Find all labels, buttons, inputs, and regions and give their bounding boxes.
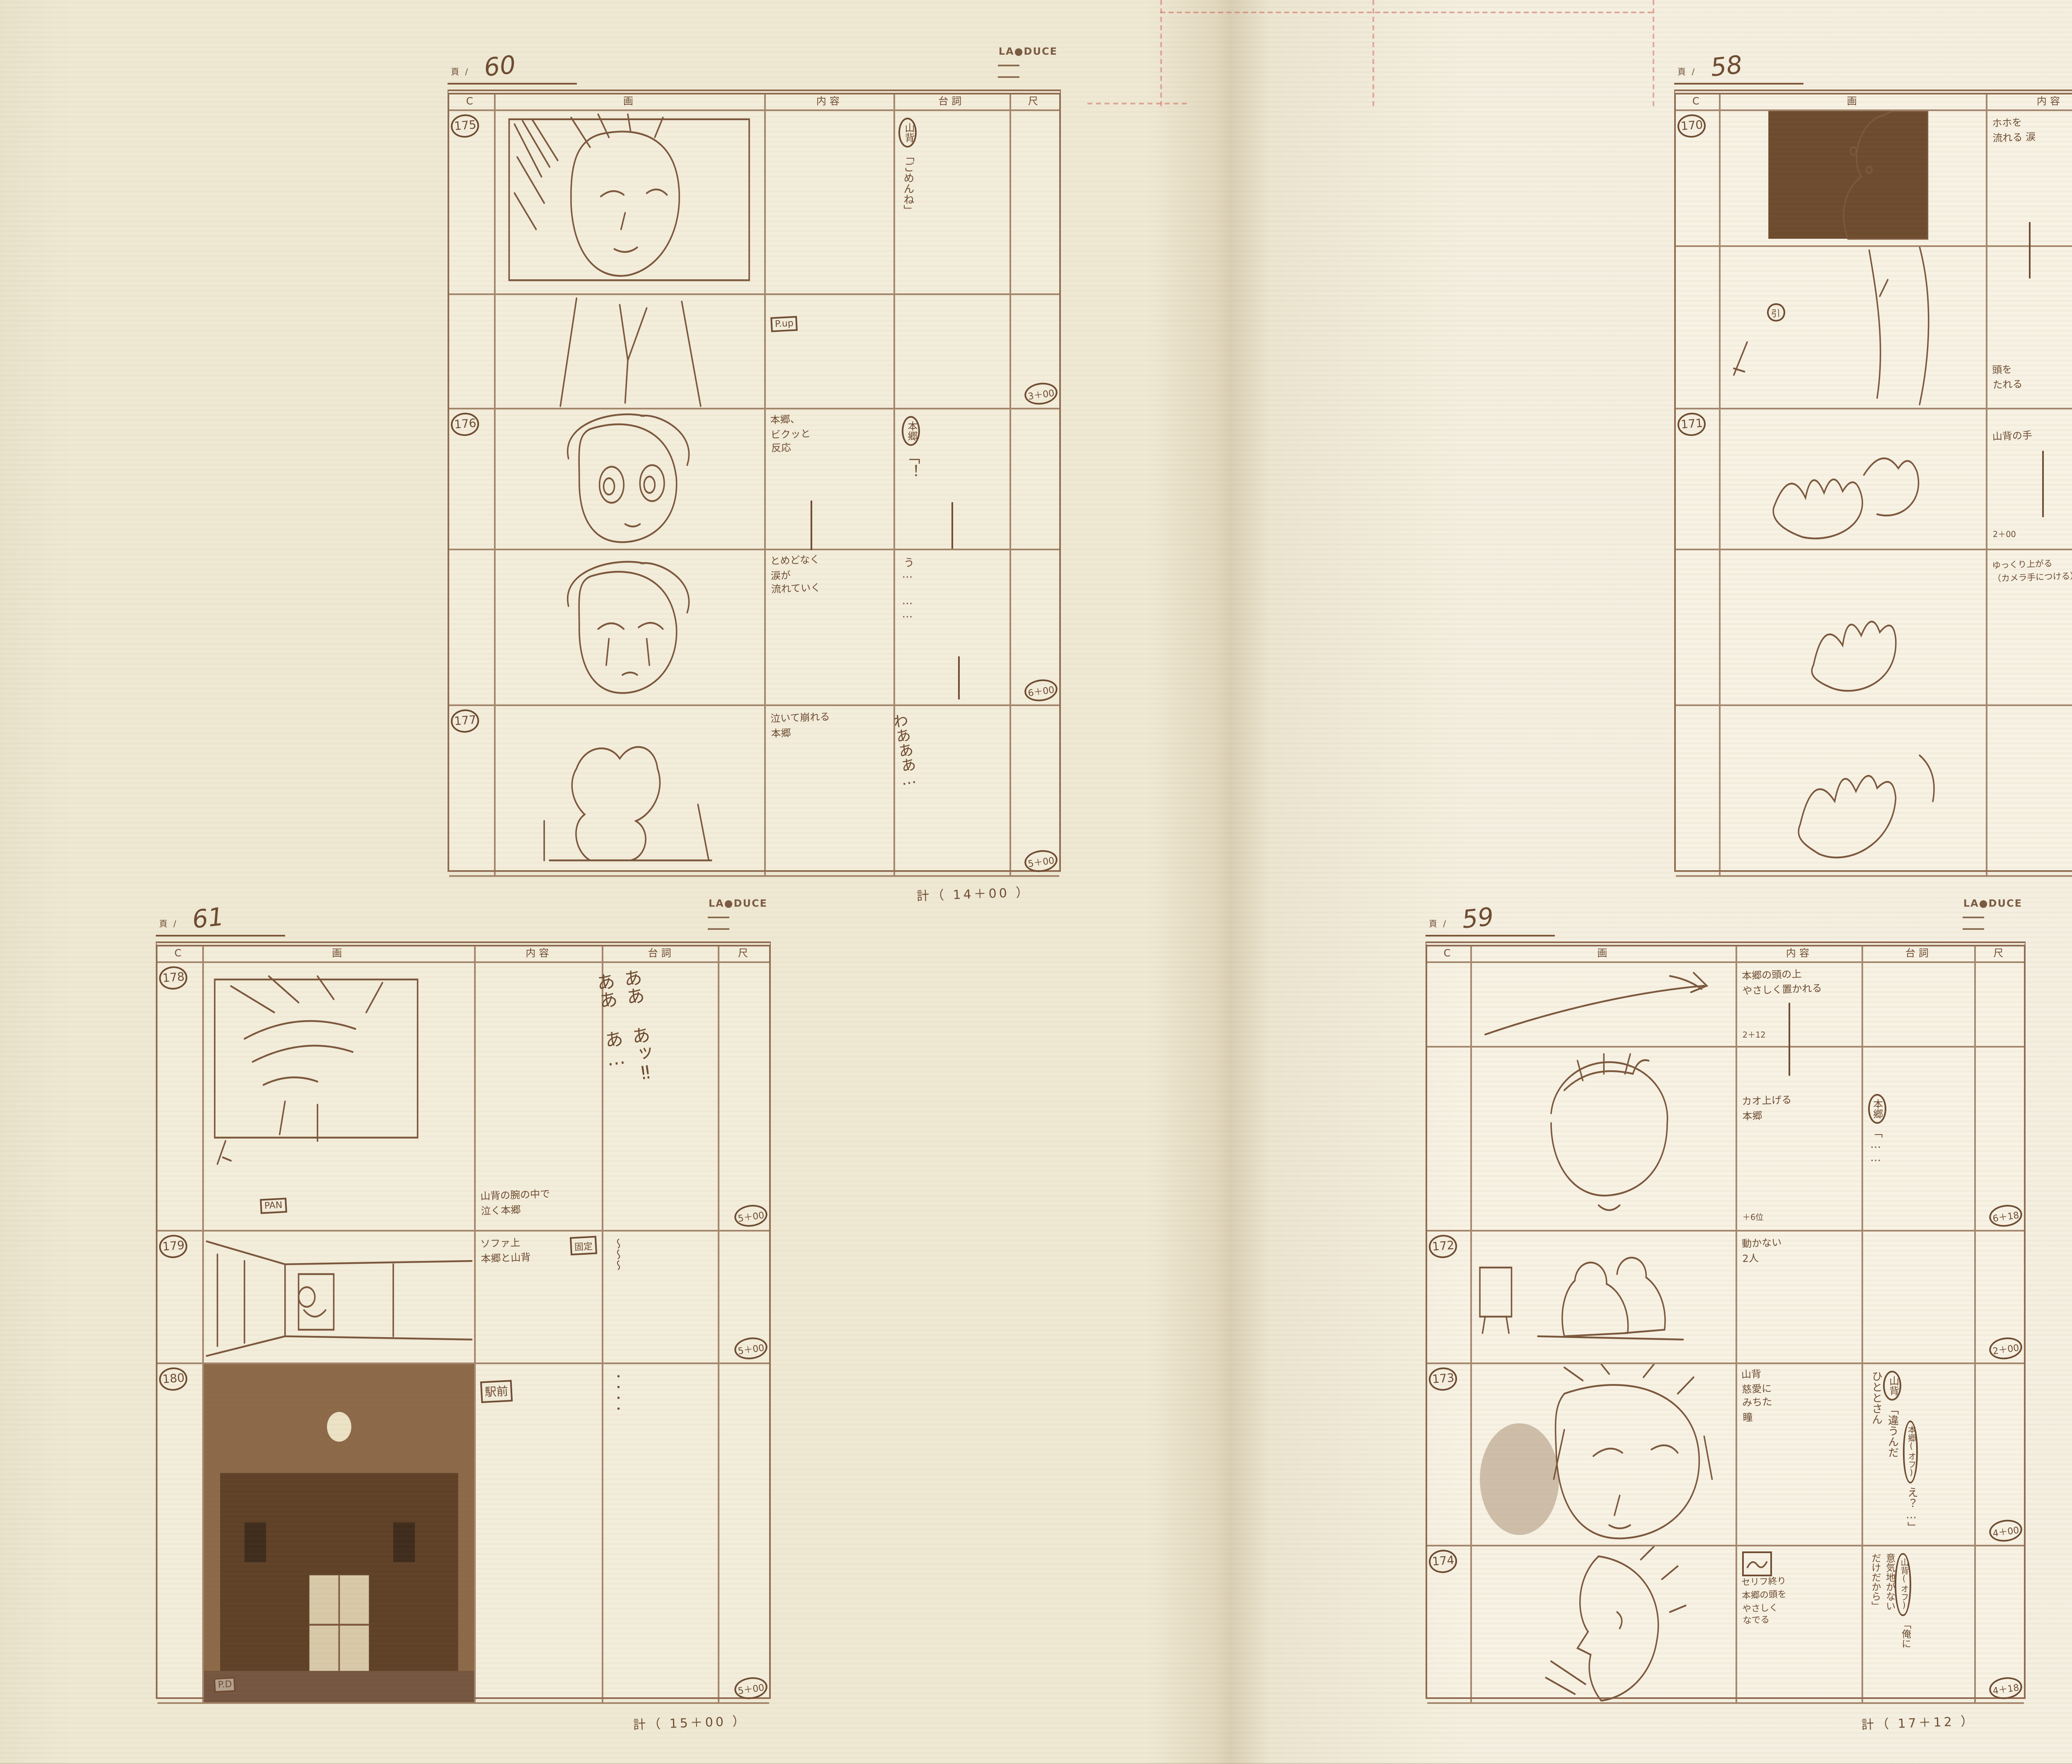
timing-value: 4＋00 <box>1988 1518 2024 1544</box>
dialogue-text: 本郷「…… <box>1866 1094 1886 1227</box>
timing-value: 4＋18 <box>1988 1675 2024 1701</box>
speaker-name: 本郷(オフ) <box>1902 1420 1918 1483</box>
cut-number-cell <box>1676 706 1721 877</box>
cut-number-cell: 177 <box>449 706 495 877</box>
cut-number-cell: 178 <box>157 963 203 1232</box>
action-cut-170b: 頭を たれる <box>1988 247 2072 409</box>
picture-cut-175 <box>495 111 766 295</box>
sketch-arm-reaching <box>1472 963 1736 1046</box>
sheet-page-60: 頁 / 60 LA●DUCE C 画 内容 台詞 尺 175 <box>448 90 1061 872</box>
sketch-shirt <box>495 295 765 408</box>
dialogue-cell <box>894 295 1010 409</box>
sketch-crying-eyes-closeup <box>203 963 474 1230</box>
cut-number-cell: 180 <box>157 1364 203 1704</box>
sketch-boy-face-closeup <box>1472 1364 1736 1545</box>
sketch-girl-crying <box>495 550 765 704</box>
storyboard-grid-61: C 画 内容 台詞 尺 178 PAN 山背の腕の中で 泣く本郷 ああ あッ‼ … <box>156 941 771 1699</box>
continuation-line <box>951 502 953 549</box>
picture-cut-173 <box>1472 1364 1738 1546</box>
page-label: 頁 / <box>159 918 178 930</box>
dialogue-text: う… …… <box>898 557 914 701</box>
dialogue-text: 山背「ごめんね」 <box>898 118 917 290</box>
action-text: とめどなく 涙が 流れていく <box>771 554 822 599</box>
sketch-hand-closeup <box>1721 706 1986 875</box>
action-cut-178: 山背の腕の中で 泣く本郷 <box>476 963 604 1232</box>
speaker-name: 山背 <box>899 118 917 148</box>
cut-number-cell: 176 <box>449 409 495 550</box>
col-header-timing: 尺 <box>1976 946 2024 963</box>
col-header-picture: 画 <box>495 94 766 111</box>
dialogue-trailing: 〜〜〜 <box>607 1238 623 1359</box>
action-cell <box>766 111 894 295</box>
dialogue-cut-179: 〜〜〜 <box>604 1232 720 1364</box>
reg-guide-line <box>1372 0 1374 106</box>
action-text: 山背の腕の中で 泣く本郷 <box>480 1188 550 1220</box>
timing-cut-171-total: 6＋18 <box>1976 1048 2024 1232</box>
dialogue-text-2: 本郷(オフ)え？…」 <box>1902 1420 1918 1541</box>
dialogue-cut-180: ・・・・ <box>604 1364 720 1704</box>
cut-number-cell: 175 <box>449 111 495 295</box>
sheet-total-60: 計（ 14＋00 ） <box>917 883 1031 905</box>
col-header-c: C <box>157 946 203 963</box>
reg-guide-line <box>1160 12 1653 13</box>
picture-cut-170b: 引 <box>1721 247 1988 409</box>
action-text: ソファ上 本郷と山背 <box>480 1238 530 1268</box>
timing-cut-174: 4＋18 <box>1976 1546 2024 1704</box>
sketch-clasped-hands <box>1721 409 1986 549</box>
timing-cell <box>1010 111 1059 295</box>
timing-value: 2＋00 <box>1988 1336 2024 1362</box>
action-cut-177: 泣いて崩れる 本郷 <box>766 706 894 877</box>
continuation-line <box>2029 222 2031 278</box>
picture-cut-170 <box>1721 111 1988 247</box>
picture-cut-177 <box>495 706 766 877</box>
cut-number: 175 <box>450 114 480 139</box>
page-number: 59 <box>1460 902 1495 935</box>
cut-number-cell: 173 <box>1427 1364 1472 1546</box>
picture-hand-on-head <box>1472 1048 1738 1232</box>
sheet-61-header: 頁 / 61 LA●DUCE <box>156 897 771 936</box>
cut-number: 177 <box>450 709 480 734</box>
timing-value: 6＋18 <box>1988 1203 2024 1229</box>
sheet-total-61: 計（ 15＋00 ） <box>633 1712 748 1734</box>
sheet-59-header: 頁 / 59 LA●DUCE <box>1426 897 2026 936</box>
sketch-boy-face <box>495 111 765 293</box>
timing-value: 5＋00 <box>733 1675 769 1701</box>
action-text: 泣いて崩れる 本郷 <box>771 712 831 743</box>
picture-cut-179 <box>203 1232 476 1364</box>
action-text: 頭を たれる <box>1992 363 2023 393</box>
page-number: 60 <box>482 50 517 83</box>
reg-guide-line <box>1160 0 1162 106</box>
action-text: 動かない 2人 <box>1742 1238 1783 1268</box>
page-number-underline <box>448 83 577 85</box>
continuation-line <box>811 501 813 550</box>
camera-note: ゆっくり上がる （カメラ手につける） <box>1992 559 2072 587</box>
timing-cut-177: 5＋00 <box>1010 706 1059 877</box>
cut-number-cell <box>1676 550 1721 706</box>
action-cut-176: 本郷、 ビクッと 反応 <box>766 409 894 550</box>
laduce-logo: LA●DUCE <box>709 898 767 933</box>
logo-subtext-lines <box>1963 910 2022 933</box>
cut-number-cell: 179 <box>157 1232 203 1364</box>
page-number: 61 <box>191 902 225 935</box>
action-cut-179: ソファ上 本郷と山背 固定 <box>476 1232 604 1364</box>
page-label: 頁 / <box>451 66 470 78</box>
dialogue-cut-177: わあああ… <box>894 706 1010 877</box>
action-cut-176b: とめどなく 涙が 流れていく <box>766 550 894 706</box>
cut-number: 176 <box>450 412 480 437</box>
picture-cut-175b <box>495 295 766 409</box>
sheet-page-58: 頁 / 58 LA●DUCE C 画 内容 台詞 尺 170 ホホを 流れる 涙… <box>1674 90 2072 872</box>
picture-cut-171 <box>1721 409 1988 550</box>
col-header-timing: 尺 <box>1010 94 1059 111</box>
storyboard-grid-60: C 画 内容 台詞 尺 175 山背「ごめんね」 <box>448 90 1061 872</box>
laduce-logo: LA●DUCE <box>1963 898 2022 933</box>
cut-number: 174 <box>1428 1549 1458 1574</box>
col-header-action: 内容 <box>1738 946 1863 963</box>
timing-value: 6＋00 <box>1023 678 1059 704</box>
reg-guide-line <box>1653 0 1654 106</box>
picture-cut-176 <box>495 409 766 550</box>
sketch-girl-face <box>495 409 765 549</box>
action-cut-175-note: P.up <box>766 295 894 409</box>
cut-number-cell <box>449 550 495 706</box>
cut-number-cell: 172 <box>1427 1232 1472 1364</box>
picture-cut-172 <box>1472 1232 1738 1364</box>
col-header-dialogue: 台詞 <box>1863 946 1976 963</box>
cut-number: 171 <box>1677 412 1707 437</box>
sketch-station-night <box>203 1364 474 1702</box>
cut-number: 180 <box>158 1367 189 1392</box>
timing-cut-178: 5＋00 <box>720 963 769 1232</box>
cut-number: 172 <box>1428 1234 1458 1259</box>
cut-number-cell: 170 <box>1676 111 1721 247</box>
cut-number-cell <box>1427 963 1472 1048</box>
timing-cut-180: 5＋00 <box>720 1364 769 1704</box>
logo-subtext-lines <box>999 58 1058 81</box>
sketch-hand-rising <box>1721 550 1986 704</box>
fixed-camera-note: 固定 <box>570 1236 598 1255</box>
speaker-name: 山背 <box>1883 1371 1902 1401</box>
dialogue-text: 山背「違うんだ ひととさん <box>1866 1371 1902 1541</box>
timing-value: 3＋00 <box>1023 381 1059 407</box>
picture-cut-180-station: P.D <box>203 1364 476 1704</box>
continuation-line <box>2043 451 2044 517</box>
picture-cut-174 <box>1472 1546 1738 1704</box>
speaker-name: 本郷 <box>1867 1094 1886 1124</box>
page-label: 頁 / <box>1429 918 1447 930</box>
station-front-note: 駅前 <box>480 1379 513 1402</box>
dialogue-hongo-silent: 本郷「…… <box>1863 1048 1976 1232</box>
timing-cut-173: 4＋00 <box>1976 1364 2024 1546</box>
page-number-underline <box>1674 83 1803 85</box>
logo-subtext-lines <box>709 910 767 933</box>
cut-number-cell: 174 <box>1427 1546 1472 1704</box>
storyboard-grid-58: C 画 内容 台詞 尺 170 ホホを 流れる 涙 本郷「教えて！ <box>1674 90 2072 872</box>
action-text: ホホを 流れる 涙 <box>1992 117 2036 148</box>
action-cell <box>1988 706 2072 877</box>
pull-back-note: 引 <box>1767 303 1785 322</box>
sketch-room-interior <box>203 1232 474 1362</box>
action-cut-171b: ゆっくり上がる （カメラ手につける） <box>1988 550 2072 706</box>
col-header-action: 内容 <box>766 94 894 111</box>
action-cut-172: 動かない 2人 <box>1738 1232 1863 1364</box>
timing-value: 5＋00 <box>733 1203 769 1229</box>
action-cut-173: 山背 慈愛に みちた 瞳 <box>1738 1364 1863 1546</box>
dialogue-cut-174: 山背(オフ)「俺に 意気地がない だけだから」 <box>1863 1546 1976 1704</box>
picture-cut-176b <box>495 550 766 706</box>
timing-cell <box>1976 963 2024 1048</box>
picture-cut-171b <box>1721 550 1988 706</box>
col-header-action: 内容 <box>1988 94 2072 111</box>
sketch-profile-and-hand <box>1472 1546 1736 1702</box>
col-header-picture: 画 <box>203 946 476 963</box>
dialogue-trailing-dots: ・・・・ <box>607 1371 623 1699</box>
sketch-two-people-room <box>1472 1232 1736 1362</box>
col-header-timing: 尺 <box>720 946 769 963</box>
col-header-c: C <box>1676 94 1721 111</box>
col-header-action: 内容 <box>476 946 604 963</box>
sheet-58-header: 頁 / 58 LA●DUCE <box>1674 45 2072 85</box>
col-header-picture: 画 <box>1472 946 1738 963</box>
pan-up-note: P.up <box>771 315 799 331</box>
cut-number: 179 <box>158 1234 189 1259</box>
action-face-up: カオ上げる 本郷＋6位 <box>1738 1048 1863 1232</box>
sheet-total-59: 計（ 17＋12 ） <box>1861 1712 1976 1734</box>
timing-cut-179: 5＋00 <box>720 1232 769 1364</box>
action-text: 本郷、 ビクッと 反応 <box>771 414 812 458</box>
sheet-60-header: 頁 / 60 LA●DUCE <box>448 45 1061 85</box>
sketch-dark-profile <box>1721 111 1986 245</box>
action-cut-171: 山背の手2＋00 <box>1988 409 2072 550</box>
timing-value: 5＋00 <box>1023 848 1059 874</box>
timing-cell <box>1010 409 1059 550</box>
dialogue-cut-173: 山背「違うんだ ひととさん本郷(オフ)え？…」 <box>1863 1364 1976 1546</box>
picture-cut-171-cont <box>1472 963 1738 1048</box>
cut-number-cell <box>449 295 495 409</box>
dialogue-cut-175: 山背「ごめんね」 <box>894 111 1010 295</box>
action-text: 本郷の頭の上 やさしく置かれる <box>1742 969 1823 1000</box>
dialogue-text: 山背(オフ)「俺に 意気地がない だけだから」 <box>1866 1553 1911 1699</box>
col-header-dialogue: 台詞 <box>894 94 1010 111</box>
page-number-underline <box>156 935 285 936</box>
pan-down-note: P.D <box>213 1677 236 1693</box>
dialogue-text: 本郷「！ <box>898 416 920 545</box>
col-header-c: C <box>449 94 495 111</box>
dialogue-cut-178: ああ あッ‼ ああ あ… <box>604 963 720 1232</box>
dialogue-cell <box>1863 1232 1976 1364</box>
timing-inline-note: 2＋00 <box>1993 529 2016 540</box>
dialogue-cut-176b: う… …… <box>894 550 1010 706</box>
inset-thumbnail-sketch <box>1743 1551 1772 1576</box>
timing-inline-note: ＋6位 <box>1743 1212 1764 1223</box>
page-number: 58 <box>1709 50 1743 83</box>
cut-number: 178 <box>158 965 189 991</box>
sketch-bowed-shoulder <box>1721 247 1986 408</box>
page-label: 頁 / <box>1677 66 1696 78</box>
cut-number: 173 <box>1428 1367 1458 1392</box>
action-cut-180: 駅前 <box>476 1364 604 1704</box>
sheet-page-61: 頁 / 61 LA●DUCE C 画 内容 台詞 尺 178 PAN 山背の腕の… <box>156 941 771 1699</box>
action-text: セリフ終り 本郷の頭を やさしく なでる <box>1742 1577 1788 1631</box>
timing-cut-176: 6＋00 <box>1010 550 1059 706</box>
storyboard-grid-59: C 画 内容 台詞 尺 本郷の頭の上 やさしく置かれる2＋12 <box>1426 941 2026 1699</box>
action-text: カオ上げる 本郷 <box>1742 1095 1793 1125</box>
picture-cut-178: PAN <box>203 963 476 1232</box>
picture-cut-171c <box>1721 706 1988 877</box>
continuation-line <box>1789 1003 1791 1076</box>
speaker-name: 山背(オフ) <box>1895 1553 1911 1616</box>
speaker-name: 本郷 <box>902 416 920 446</box>
col-header-picture: 画 <box>1721 94 1988 111</box>
col-header-c: C <box>1427 946 1472 963</box>
action-cut-174: セリフ終り 本郷の頭を やさしく なでる <box>1738 1546 1863 1704</box>
timing-value: 5＋00 <box>733 1336 769 1362</box>
laduce-logo: LA●DUCE <box>999 46 1058 81</box>
action-text: 山背 慈愛に みちた 瞳 <box>1741 1369 1773 1427</box>
continuation-line <box>957 656 959 699</box>
sketch-hand-on-head <box>1472 1048 1736 1230</box>
cut-number-cell <box>1427 1048 1472 1232</box>
timing-inline-note: 2＋12 <box>1743 1029 1766 1041</box>
pan-note: PAN <box>259 1198 286 1214</box>
storyboard-book-spread: 頁 / 60 LA●DUCE C 画 内容 台詞 尺 175 <box>0 0 2072 1764</box>
reg-guide-line <box>1087 103 1187 104</box>
page-number-underline <box>1426 935 1555 936</box>
action-cut-171-cont: 本郷の頭の上 やさしく置かれる2＋12 <box>1738 963 1863 1048</box>
cut-number-cell <box>1676 247 1721 409</box>
timing-cut-175: 3＋00 <box>1010 295 1059 409</box>
cut-number: 170 <box>1677 114 1707 139</box>
timing-cut-172: 2＋00 <box>1976 1232 2024 1364</box>
action-text: 山背の手 <box>1992 430 2033 446</box>
cut-number-cell: 171 <box>1676 409 1721 550</box>
sketch-two-figures-hug <box>495 706 765 875</box>
dialogue-cell <box>1863 963 1976 1048</box>
dialogue-cut-176: 本郷「！ <box>894 409 1010 550</box>
col-header-dialogue: 台詞 <box>604 946 720 963</box>
sheet-page-59: 頁 / 59 LA●DUCE C 画 内容 台詞 尺 本郷の頭の上 やさしく置か… <box>1426 941 2026 1699</box>
